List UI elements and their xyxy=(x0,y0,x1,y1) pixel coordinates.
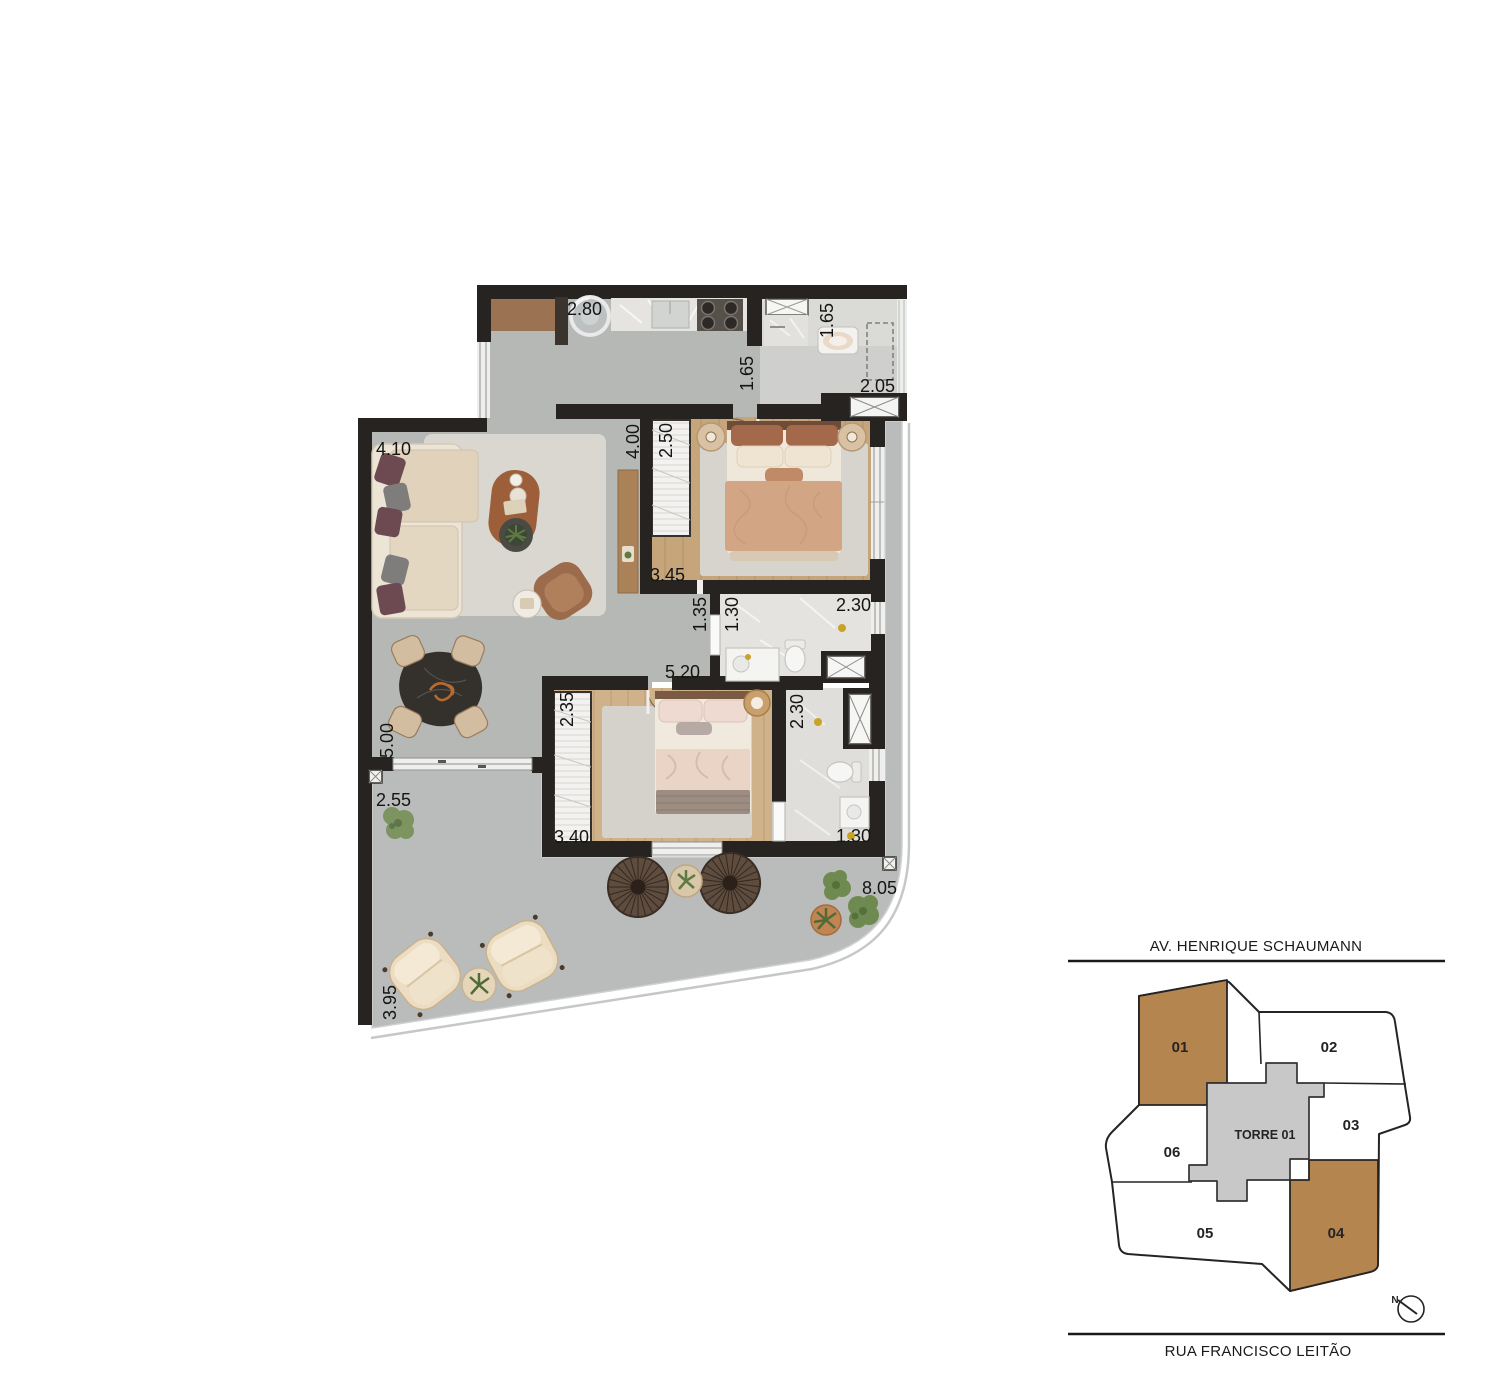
svg-text:5.00: 5.00 xyxy=(377,723,397,758)
svg-text:N: N xyxy=(1391,1295,1398,1306)
svg-text:05: 05 xyxy=(1197,1225,1214,1242)
svg-text:2.35: 2.35 xyxy=(557,692,577,727)
svg-text:1.65: 1.65 xyxy=(737,356,757,391)
svg-text:3.45: 3.45 xyxy=(650,565,685,585)
svg-text:2.50: 2.50 xyxy=(656,423,676,458)
svg-text:1.65: 1.65 xyxy=(817,303,837,338)
svg-text:2.55: 2.55 xyxy=(376,790,411,810)
svg-text:2.30: 2.30 xyxy=(836,595,871,615)
svg-text:03: 03 xyxy=(1343,1117,1360,1134)
svg-text:RUA FRANCISCO LEITÃO: RUA FRANCISCO LEITÃO xyxy=(1165,1343,1352,1360)
svg-text:1.35: 1.35 xyxy=(690,597,710,632)
svg-text:TORRE 01: TORRE 01 xyxy=(1235,1128,1296,1142)
svg-text:04: 04 xyxy=(1328,1225,1345,1242)
svg-text:02: 02 xyxy=(1321,1039,1338,1056)
svg-text:2.80: 2.80 xyxy=(567,299,602,319)
svg-text:4.00: 4.00 xyxy=(623,424,643,459)
svg-text:4.10: 4.10 xyxy=(376,439,411,459)
svg-text:3.95: 3.95 xyxy=(380,985,400,1020)
svg-text:3.40: 3.40 xyxy=(554,827,589,847)
svg-text:1.30: 1.30 xyxy=(836,826,871,846)
svg-text:01: 01 xyxy=(1172,1039,1189,1056)
svg-text:06: 06 xyxy=(1164,1144,1181,1161)
svg-text:1.30: 1.30 xyxy=(722,597,742,632)
svg-text:2.30: 2.30 xyxy=(787,694,807,729)
svg-text:8.05: 8.05 xyxy=(862,878,897,898)
svg-text:2.05: 2.05 xyxy=(860,376,895,396)
svg-text:AV. HENRIQUE SCHAUMANN: AV. HENRIQUE SCHAUMANN xyxy=(1150,938,1362,955)
svg-text:5.20: 5.20 xyxy=(665,662,700,682)
